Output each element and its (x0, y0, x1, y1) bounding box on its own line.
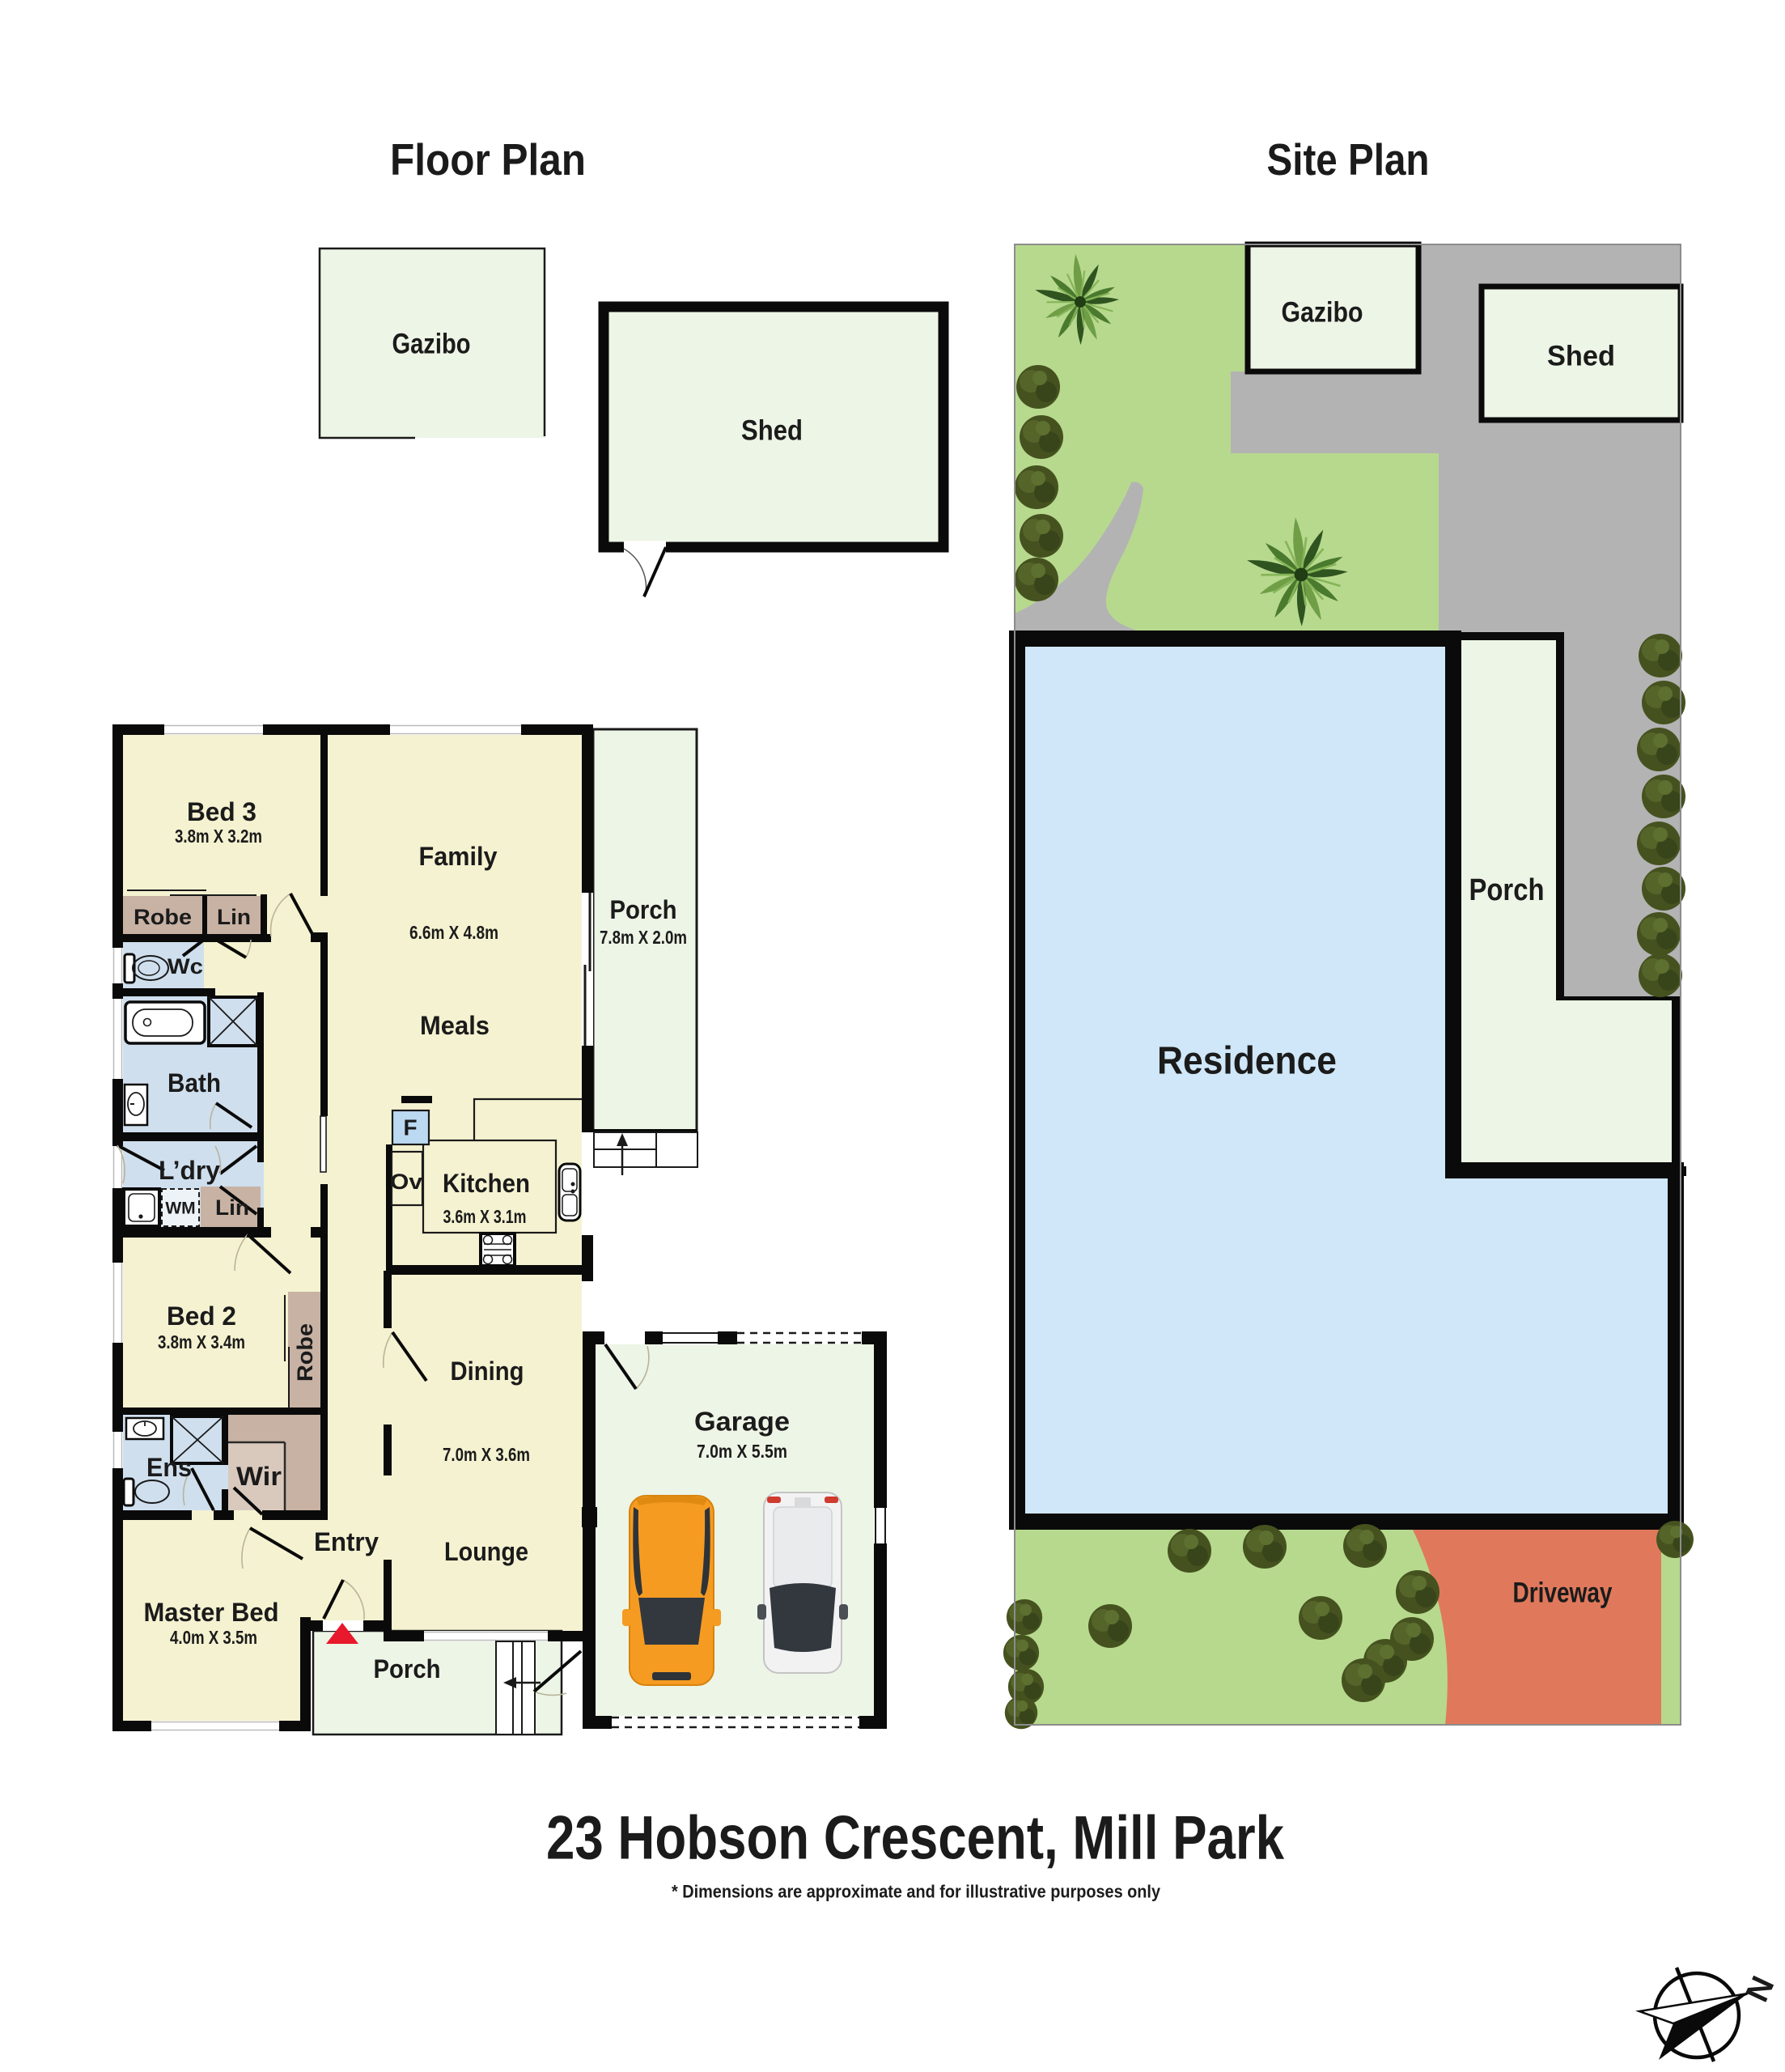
svg-text:Robe: Robe (293, 1323, 317, 1382)
svg-text:Family: Family (419, 842, 498, 871)
svg-text:Kitchen: Kitchen (443, 1169, 530, 1198)
svg-text:Shed: Shed (741, 415, 803, 447)
svg-text:Entry: Entry (314, 1527, 379, 1556)
svg-text:F: F (403, 1115, 417, 1140)
svg-text:3.8m X 3.2m: 3.8m X 3.2m (175, 826, 262, 847)
svg-text:3.6m X 3.1m: 3.6m X 3.1m (443, 1206, 527, 1227)
svg-text:7.0m X 3.6m: 7.0m X 3.6m (443, 1444, 530, 1465)
svg-text:Robe: Robe (134, 905, 192, 929)
svg-text:Bed 2: Bed 2 (167, 1301, 236, 1331)
svg-text:L’dry: L’dry (159, 1156, 220, 1185)
svg-text:Garage: Garage (694, 1407, 790, 1437)
svg-text:4.0m X 3.5m: 4.0m X 3.5m (170, 1627, 257, 1648)
svg-text:6.6m X 4.8m: 6.6m X 4.8m (409, 922, 498, 943)
svg-text:Porch: Porch (374, 1654, 441, 1683)
svg-text:Gazibo: Gazibo (1282, 297, 1363, 329)
svg-text:3.8m X 3.4m: 3.8m X 3.4m (158, 1331, 245, 1352)
svg-text:Bed 3: Bed 3 (187, 797, 257, 826)
svg-text:Lin: Lin (215, 1195, 249, 1220)
svg-text:Porch: Porch (610, 895, 677, 924)
svg-text:Bath: Bath (167, 1068, 221, 1098)
svg-text:Shed: Shed (1547, 341, 1615, 372)
svg-text:WM: WM (165, 1199, 195, 1218)
svg-text:* Dimensions are approximate a: * Dimensions are approximate and for ill… (672, 1882, 1161, 1902)
svg-text:Porch: Porch (1469, 873, 1545, 907)
svg-text:Lin: Lin (217, 905, 251, 929)
svg-text:7.0m X 5.5m: 7.0m X 5.5m (697, 1441, 787, 1462)
svg-text:Wc: Wc (167, 954, 203, 979)
svg-text:Ens: Ens (146, 1453, 192, 1482)
svg-text:Driveway: Driveway (1513, 1577, 1613, 1609)
svg-text:23 Hobson Crescent, Mill Park: 23 Hobson Crescent, Mill Park (546, 1804, 1285, 1873)
svg-text:Site Plan: Site Plan (1267, 134, 1430, 185)
svg-text:Master Bed: Master Bed (144, 1598, 279, 1627)
svg-text:Floor Plan: Floor Plan (390, 134, 586, 185)
svg-text:Wir: Wir (236, 1462, 282, 1491)
svg-text:Gazibo: Gazibo (392, 329, 471, 360)
svg-text:7.8m X 2.0m: 7.8m X 2.0m (600, 927, 687, 948)
svg-text:Ov: Ov (390, 1170, 422, 1194)
svg-text:Dining: Dining (451, 1357, 524, 1386)
svg-text:Residence: Residence (1157, 1040, 1337, 1083)
svg-text:Meals: Meals (420, 1011, 490, 1040)
svg-text:Lounge: Lounge (444, 1537, 528, 1566)
